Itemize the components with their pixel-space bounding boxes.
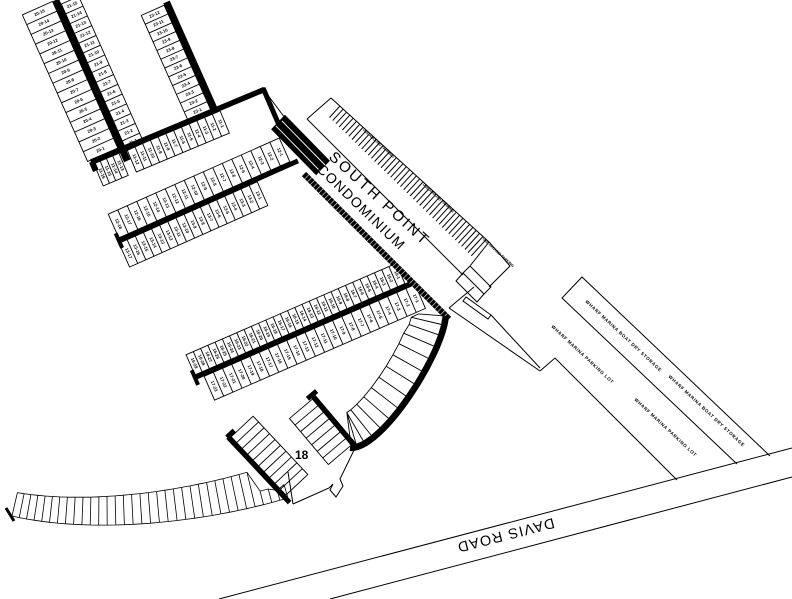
svg-text:18: 18	[295, 448, 309, 462]
